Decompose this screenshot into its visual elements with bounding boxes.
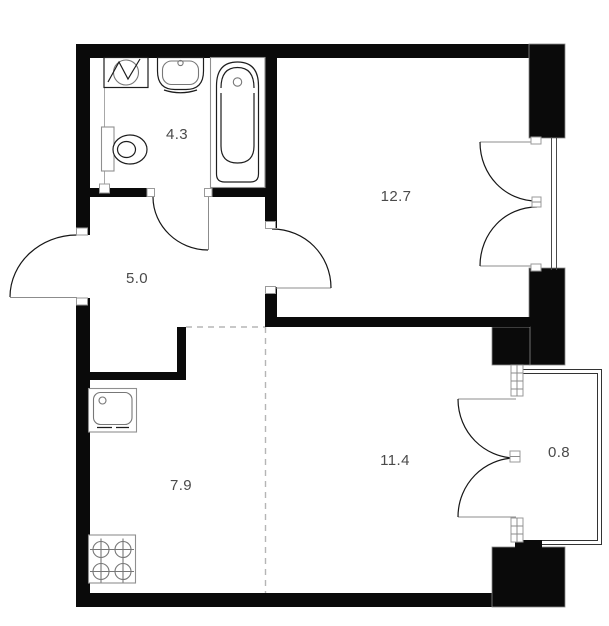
balcony-french-door [458,365,523,542]
bathroom-sink-icon [158,58,204,93]
window-hinge-marker-bottom [531,264,541,271]
living-room-area-label: 11.4 [380,452,410,469]
entrance-door-arc [10,235,77,297]
wall-left-upper [76,44,90,235]
balcony-area-label: 0.8 [548,444,570,461]
kitchen-sink-icon [89,389,137,433]
wall-right-mid-block [529,268,565,365]
wall-top-right-block [529,44,565,138]
entrance-door [10,228,88,305]
bedroom-french-window [480,137,557,271]
floor-plan-canvas: 4.3 12.7 5.0 7.9 11.4 0.8 [0,0,609,626]
bathroom-door-marker-right [205,189,213,197]
bathroom-sink-lip [164,90,197,93]
entrance-hinge-marker-bottom [77,298,88,305]
toilet-cistern [102,127,115,171]
toilet-icon [102,127,148,171]
bathroom-door-arc [153,197,208,250]
wall-bottom-right-block [492,547,565,607]
window-hinge-marker-top [531,137,541,144]
balcony-door-arc-bottom [458,458,516,517]
bedroom-door [266,222,332,294]
bedroom-door-arc [272,229,331,288]
wall-bottom [90,593,492,607]
zone-separators [186,327,266,593]
washing-machine-body [104,58,148,88]
balcony-door-arc-top [458,399,516,458]
walls [76,44,565,607]
window-arc-top [480,142,537,201]
wall-kitchen-north [90,372,186,380]
wall-bathroom-east [265,58,277,228]
bedroom-door-marker-bottom [266,287,276,294]
bathtub-outer [211,58,266,188]
room-labels: 4.3 12.7 5.0 7.9 11.4 0.8 [126,126,570,494]
stove-icon [89,535,136,583]
bathroom-area-label: 4.3 [166,126,188,143]
stove-body [89,535,136,583]
wall-right-mid-extension [492,327,530,365]
bathroom-door [147,189,212,251]
hallway-area-label: 5.0 [126,270,148,287]
kitchen-area-label: 7.9 [170,477,192,494]
wall-kitchen-corner [177,327,186,374]
bathroom-duct-marker [100,184,110,193]
floor-plan: 4.3 12.7 5.0 7.9 11.4 0.8 [0,0,609,626]
wall-top [76,44,530,58]
wall-left-lower [76,298,90,607]
bedroom-area-label: 12.7 [381,188,412,205]
bedroom-door-marker-top [266,222,276,229]
washing-machine-icon [104,58,148,88]
bathroom-door-marker-left [147,189,155,197]
wall-bedroom-living-divider [273,317,530,327]
window-arc-bottom [480,207,537,266]
bathtub-icon [211,58,266,188]
entrance-hinge-marker-top [77,228,88,235]
